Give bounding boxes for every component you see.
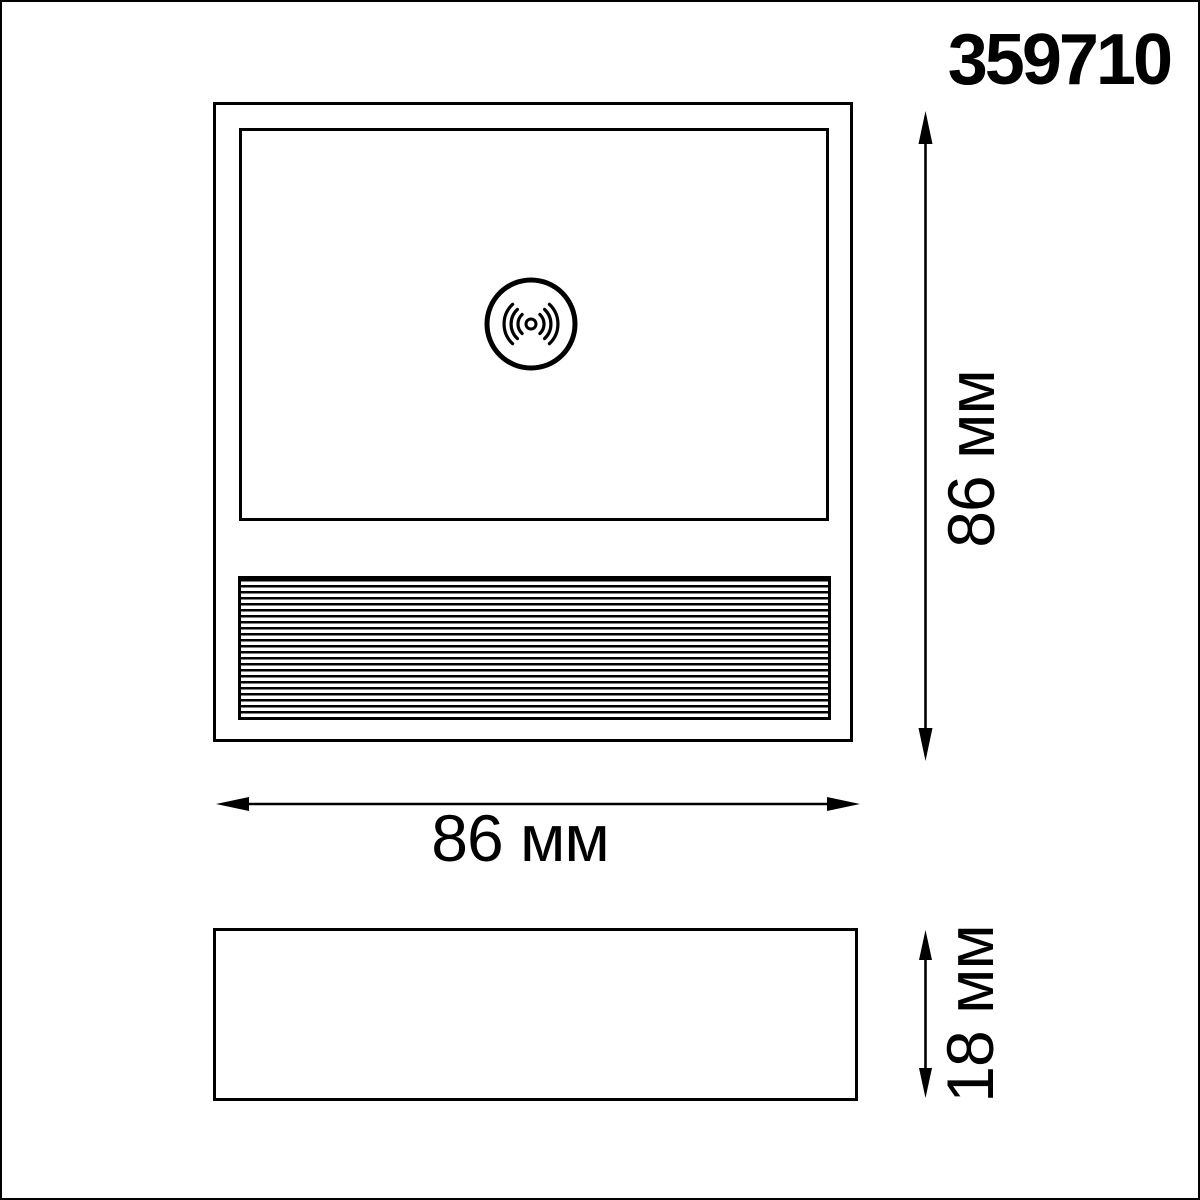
depth-dimension-label: 18 мм <box>937 925 1003 1103</box>
width-dimension-label: 86 мм <box>431 805 609 871</box>
product-code: 359710 <box>948 24 1170 96</box>
side-view <box>213 928 858 1101</box>
height-dimension-label: 86 мм <box>938 370 1004 548</box>
drawing-canvas: 359710 86 мм 86 мм <box>0 0 1200 1200</box>
front-view <box>213 102 853 742</box>
motion-sensor-icon <box>479 272 583 376</box>
ventilation-grille <box>238 576 831 720</box>
